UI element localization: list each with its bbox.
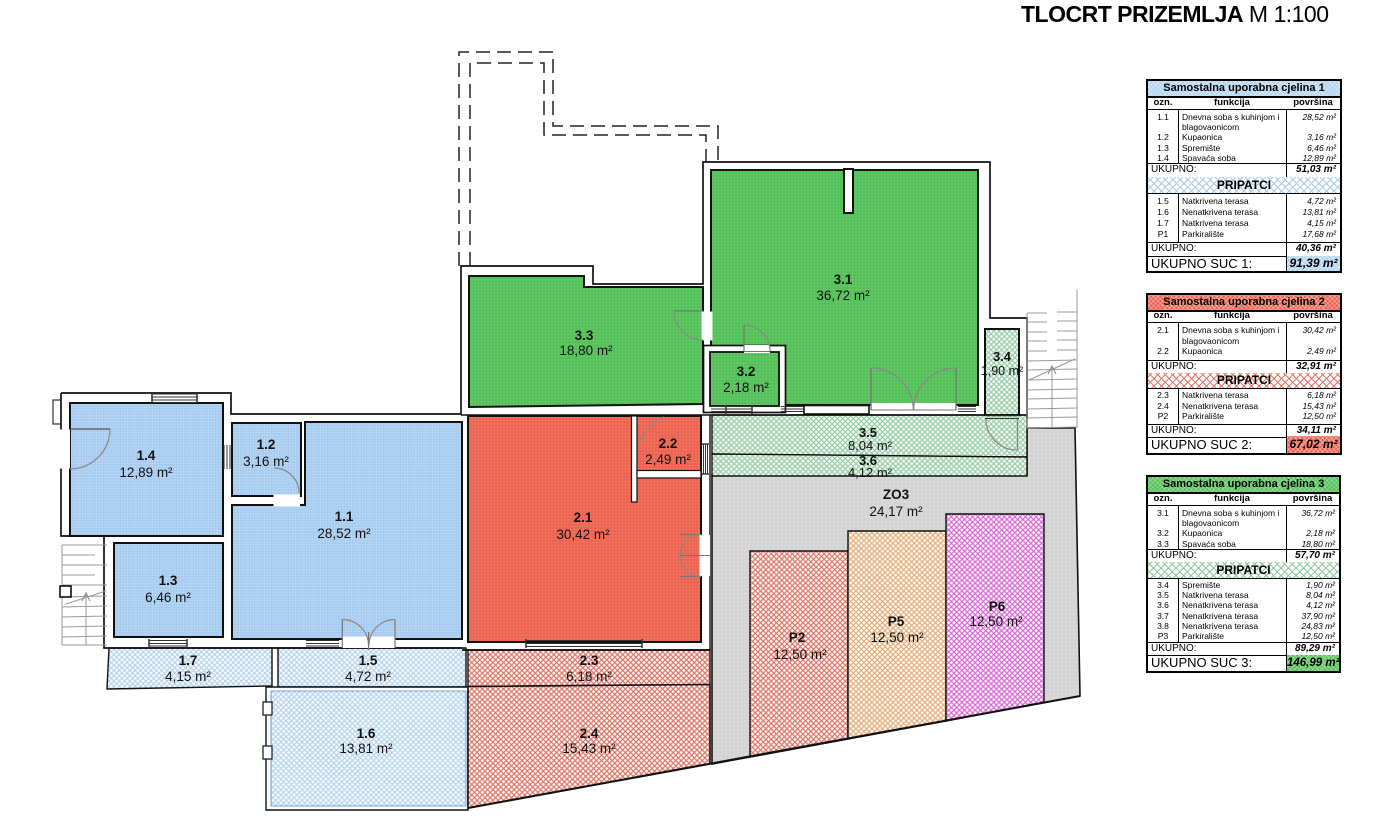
svg-text:1.7: 1.7 bbox=[179, 653, 198, 668]
svg-text:P6: P6 bbox=[989, 599, 1006, 614]
svg-text:4,12 m²: 4,12 m² bbox=[848, 465, 893, 480]
svg-text:36,72 m²: 36,72 m² bbox=[816, 288, 870, 303]
svg-text:12,50 m²: 12,50 m² bbox=[969, 614, 1023, 629]
svg-text:1.2: 1.2 bbox=[257, 437, 276, 452]
svg-text:30,42 m²: 30,42 m² bbox=[556, 527, 610, 542]
svg-text:2.3: 2.3 bbox=[580, 653, 599, 668]
svg-text:3.3: 3.3 bbox=[575, 328, 594, 343]
svg-text:2,18 m²: 2,18 m² bbox=[723, 380, 769, 395]
svg-text:1.1: 1.1 bbox=[335, 509, 354, 524]
svg-text:2.4: 2.4 bbox=[580, 726, 599, 741]
svg-text:3,16 m²: 3,16 m² bbox=[243, 454, 289, 469]
svg-text:1,90 m²: 1,90 m² bbox=[981, 364, 1023, 378]
svg-text:6,18 m²: 6,18 m² bbox=[566, 669, 612, 684]
svg-text:2.2: 2.2 bbox=[659, 436, 678, 451]
svg-text:15,43 m²: 15,43 m² bbox=[562, 741, 616, 756]
svg-text:4,15 m²: 4,15 m² bbox=[165, 669, 211, 684]
svg-text:3.1: 3.1 bbox=[834, 272, 853, 287]
svg-text:1.3: 1.3 bbox=[159, 573, 178, 588]
svg-text:1.4: 1.4 bbox=[137, 448, 156, 463]
svg-text:2,49 m²: 2,49 m² bbox=[645, 452, 691, 467]
svg-text:12,89 m²: 12,89 m² bbox=[119, 465, 173, 480]
svg-text:P2: P2 bbox=[789, 630, 806, 645]
svg-text:1.5: 1.5 bbox=[359, 653, 378, 668]
svg-text:12,50 m²: 12,50 m² bbox=[870, 630, 924, 645]
svg-text:18,80 m²: 18,80 m² bbox=[559, 343, 613, 358]
svg-text:12,50 m²: 12,50 m² bbox=[773, 647, 827, 662]
svg-text:3.2: 3.2 bbox=[737, 364, 756, 379]
svg-text:6,46 m²: 6,46 m² bbox=[145, 590, 191, 605]
svg-text:24,17 m²: 24,17 m² bbox=[869, 504, 923, 519]
svg-text:2.1: 2.1 bbox=[574, 510, 593, 525]
svg-text:ZO3: ZO3 bbox=[883, 487, 910, 502]
svg-text:1.6: 1.6 bbox=[357, 726, 376, 741]
svg-text:3.4: 3.4 bbox=[993, 349, 1012, 364]
svg-text:P5: P5 bbox=[888, 614, 905, 629]
svg-text:28,52 m²: 28,52 m² bbox=[317, 526, 371, 541]
svg-text:4,72 m²: 4,72 m² bbox=[345, 669, 391, 684]
svg-text:8,04 m²: 8,04 m² bbox=[848, 438, 893, 453]
svg-text:13,81 m²: 13,81 m² bbox=[339, 741, 393, 756]
